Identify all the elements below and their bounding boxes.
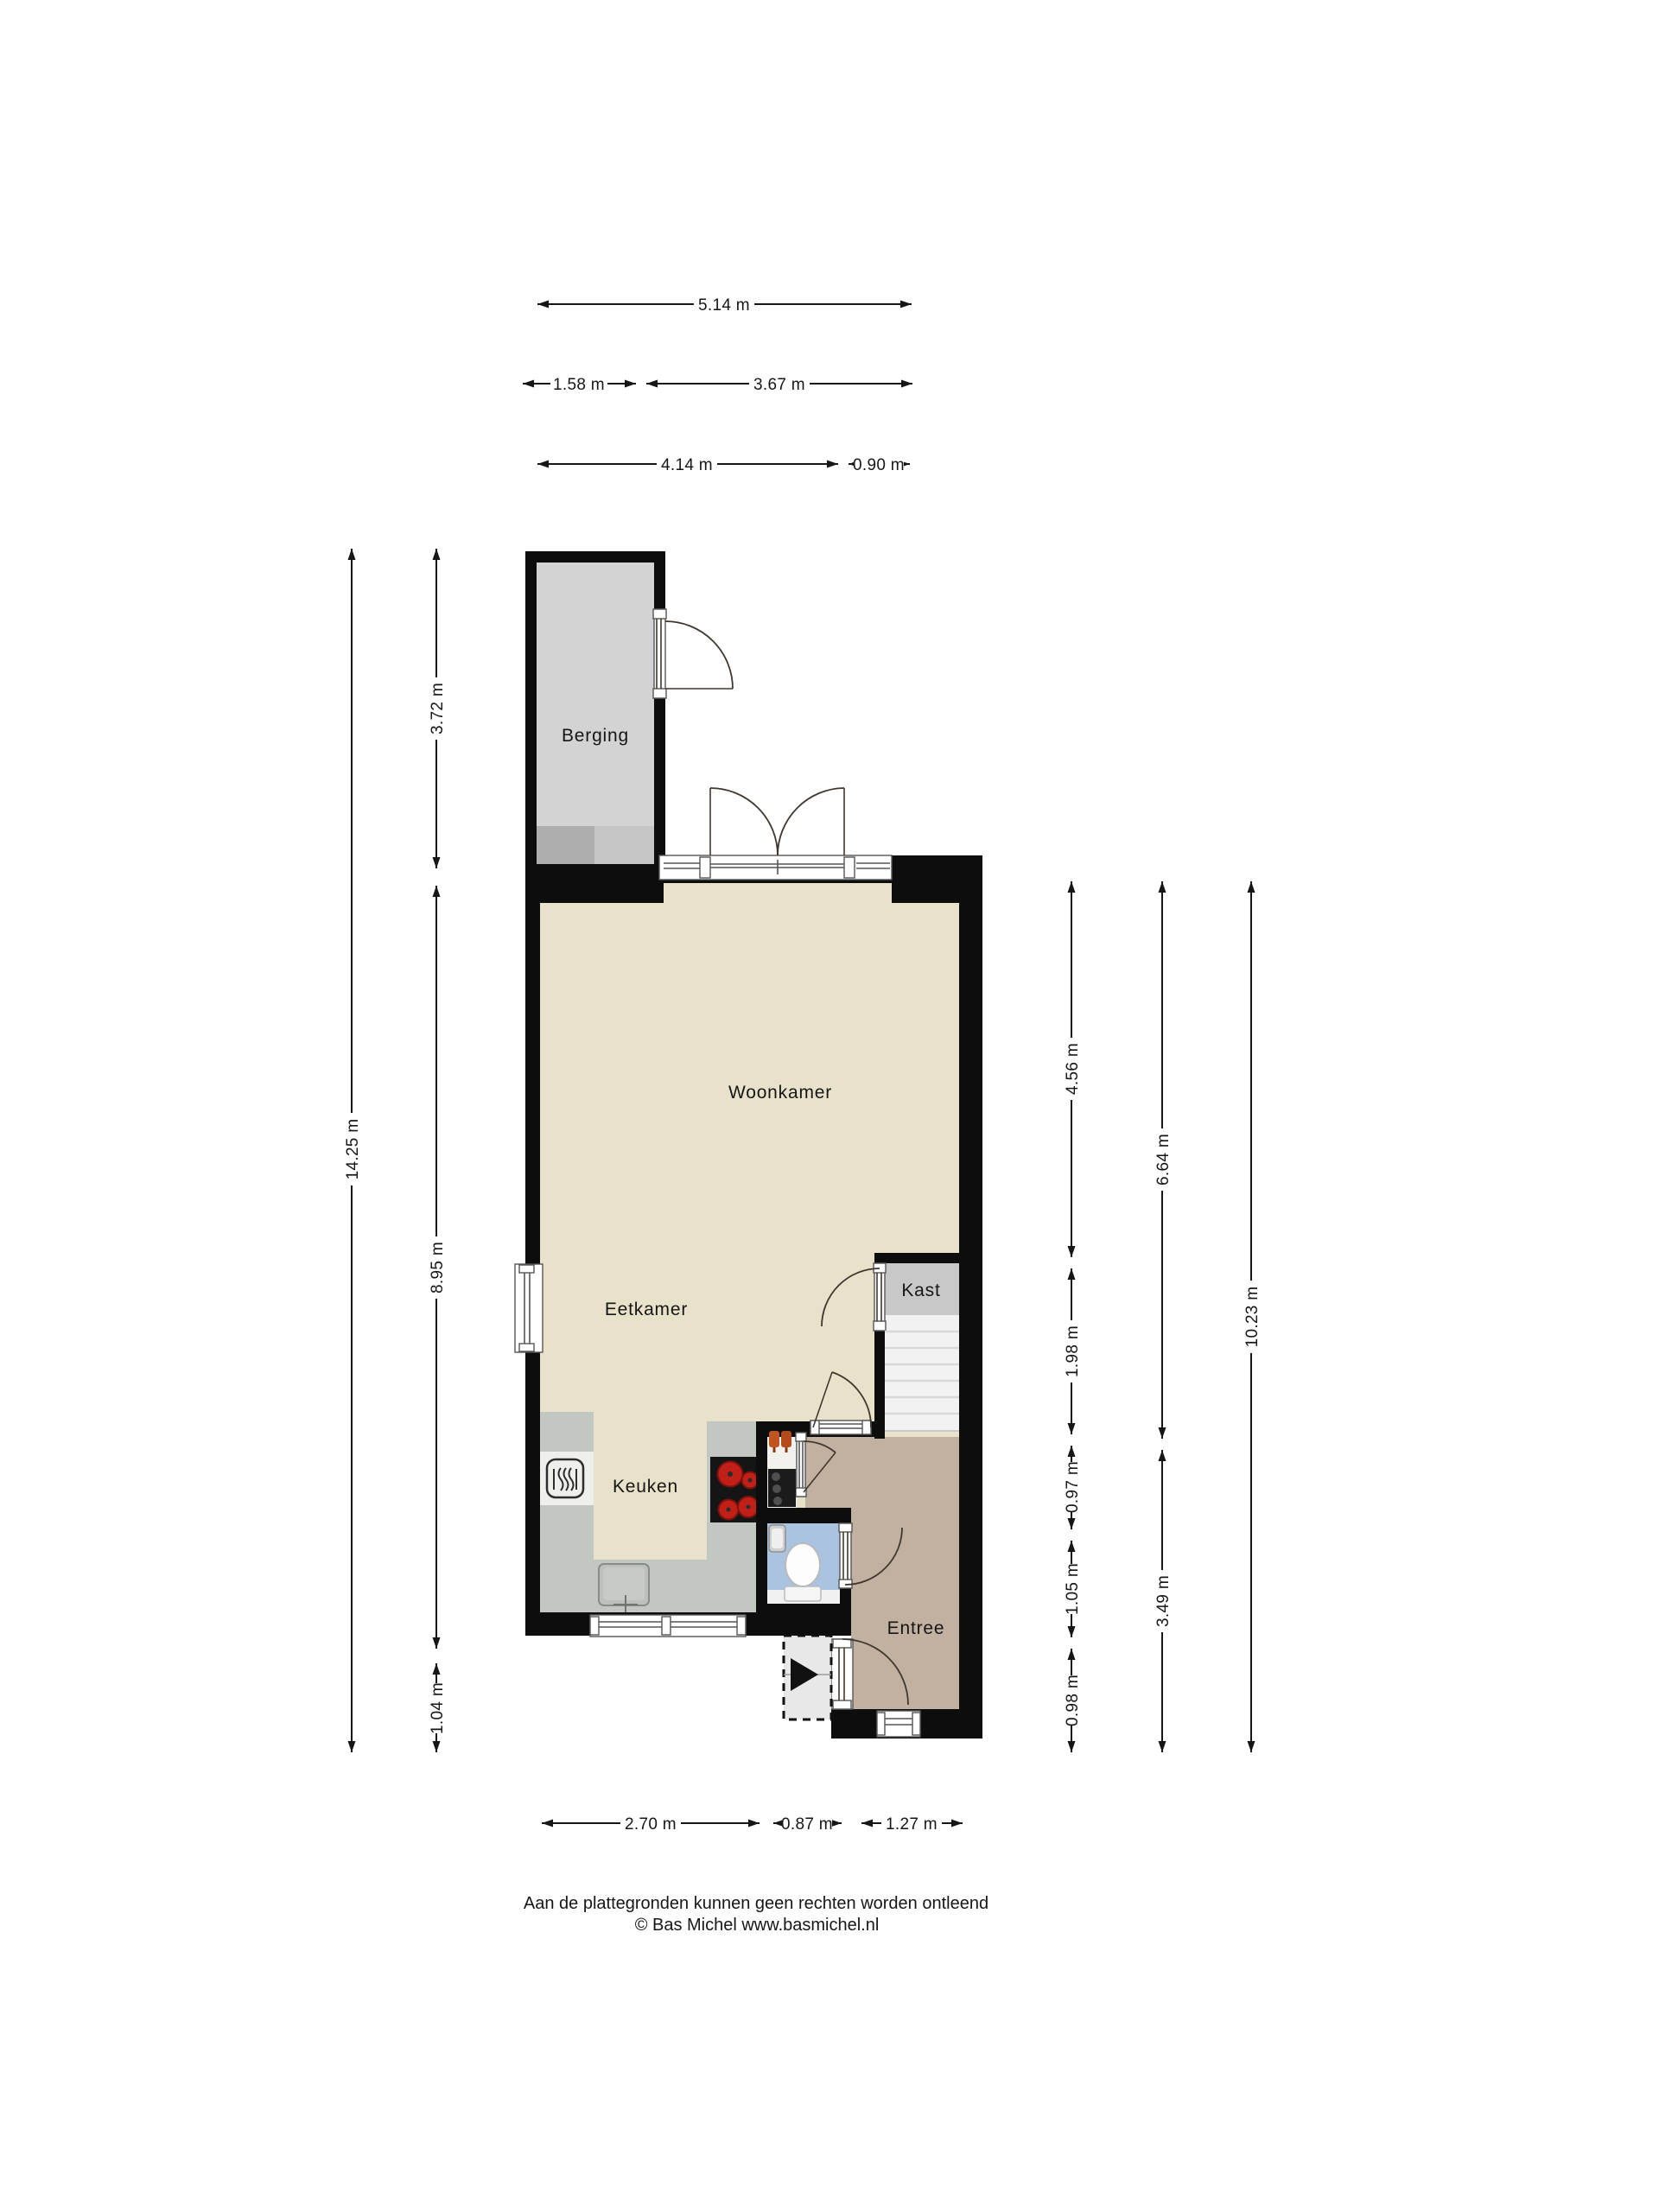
berging-wall-left xyxy=(525,551,537,875)
kast-label: Kast xyxy=(901,1281,940,1300)
svg-text:1.27 m: 1.27 m xyxy=(886,1815,938,1834)
svg-text:8.95 m: 8.95 m xyxy=(429,1242,447,1294)
berging-door xyxy=(653,609,733,698)
entrance-porch xyxy=(784,1636,831,1719)
garden-double-door xyxy=(710,788,844,855)
eetkamer-label: Eetkamer xyxy=(605,1300,688,1319)
kitchen-divider-wall xyxy=(756,1421,767,1636)
toilet-right-wall-upper xyxy=(840,1508,851,1523)
svg-text:1.04 m: 1.04 m xyxy=(429,1682,447,1734)
dim-width-367: 3.67 m xyxy=(646,373,912,394)
left-wall-window xyxy=(515,1264,543,1352)
dim-height-1023: 10.23 m xyxy=(1241,881,1262,1752)
dim-width-090: 0.90 m xyxy=(849,454,910,474)
svg-text:4.56 m: 4.56 m xyxy=(1064,1043,1082,1095)
svg-text:1.05 m: 1.05 m xyxy=(1064,1563,1082,1615)
svg-text:0.98 m: 0.98 m xyxy=(1064,1675,1082,1726)
dim-height-105: 1.05 m xyxy=(1061,1541,1082,1637)
toilet-icon xyxy=(785,1543,821,1601)
house-wall-top-right xyxy=(892,855,982,903)
house-wall-top-left xyxy=(525,871,664,903)
floorplan-page: Berging Woonkamer Eetkamer Keuken Kast E… xyxy=(0,0,1659,2212)
dim-height-349: 3.49 m xyxy=(1152,1450,1173,1752)
svg-text:0.87 m: 0.87 m xyxy=(781,1815,833,1834)
dim-width-087: 0.87 m xyxy=(773,1813,842,1834)
toilet-top-wall xyxy=(756,1508,851,1523)
berging-wall-top xyxy=(525,551,665,563)
svg-text:4.14 m: 4.14 m xyxy=(661,456,713,474)
dim-width-514: 5.14 m xyxy=(537,294,912,315)
dim-height-895: 8.95 m xyxy=(426,886,447,1649)
dim-height-097: 0.97 m xyxy=(1061,1446,1082,1529)
kitchen-window xyxy=(590,1615,746,1637)
cooktop-icon xyxy=(710,1457,762,1522)
dim-width-127: 1.27 m xyxy=(861,1813,963,1834)
garden-door-window-band xyxy=(659,855,892,880)
berging-step-dark xyxy=(537,826,594,864)
footer-disclaimer: Aan de plattegronden kunnen geen rechten… xyxy=(524,1894,988,1913)
kast-top-wall xyxy=(874,1253,959,1263)
entree-floor-lower xyxy=(851,1508,959,1709)
svg-text:3.72 m: 3.72 m xyxy=(429,683,447,734)
dim-height-1425: 14.25 m xyxy=(341,549,362,1752)
house-wall-left xyxy=(525,871,540,1636)
dim-height-198: 1.98 m xyxy=(1061,1268,1082,1434)
svg-text:1.98 m: 1.98 m xyxy=(1064,1325,1082,1377)
floorplan-drawing: Berging Woonkamer Eetkamer Keuken Kast E… xyxy=(0,0,1659,2212)
keuken-label: Keuken xyxy=(613,1477,678,1497)
dim-height-372: 3.72 m xyxy=(426,549,447,868)
svg-text:0.90 m: 0.90 m xyxy=(853,456,905,474)
woonkamer-label: Woonkamer xyxy=(728,1083,832,1103)
entree-label: Entree xyxy=(887,1618,945,1638)
house-wall-right xyxy=(959,900,982,1738)
counter-bottom xyxy=(540,1560,760,1612)
svg-text:10.23 m: 10.23 m xyxy=(1243,1287,1262,1348)
svg-text:1.58 m: 1.58 m xyxy=(553,376,605,394)
svg-text:6.64 m: 6.64 m xyxy=(1154,1134,1173,1185)
svg-text:2.70 m: 2.70 m xyxy=(625,1815,677,1834)
dim-height-664: 6.64 m xyxy=(1152,881,1173,1439)
svg-text:3.49 m: 3.49 m xyxy=(1154,1575,1173,1627)
svg-text:14.25 m: 14.25 m xyxy=(344,1119,362,1180)
svg-text:5.14 m: 5.14 m xyxy=(698,296,750,315)
dim-height-104: 1.04 m xyxy=(426,1663,447,1752)
dim-height-098: 0.98 m xyxy=(1061,1649,1082,1752)
berging-label: Berging xyxy=(562,726,629,746)
dim-width-270: 2.70 m xyxy=(542,1813,760,1834)
meter-panel-icon xyxy=(768,1469,796,1507)
dim-width-158: 1.58 m xyxy=(523,373,636,394)
berging-floor xyxy=(537,563,654,826)
dim-height-456: 4.56 m xyxy=(1061,881,1082,1257)
dim-width-414: 4.14 m xyxy=(537,454,838,474)
sink-icon xyxy=(599,1564,649,1612)
footer-credit: © Bas Michel www.basmichel.nl xyxy=(635,1916,880,1935)
footer: Aan de plattegronden kunnen geen rechten… xyxy=(524,1894,988,1935)
berging-wall-right xyxy=(654,551,665,875)
svg-text:3.67 m: 3.67 m xyxy=(753,376,805,394)
hand-basin-icon xyxy=(769,1525,785,1552)
entree-window xyxy=(877,1711,920,1737)
svg-text:0.97 m: 0.97 m xyxy=(1064,1461,1082,1513)
toilet-bottom-wall xyxy=(756,1604,851,1636)
berging-step-light xyxy=(594,826,654,864)
